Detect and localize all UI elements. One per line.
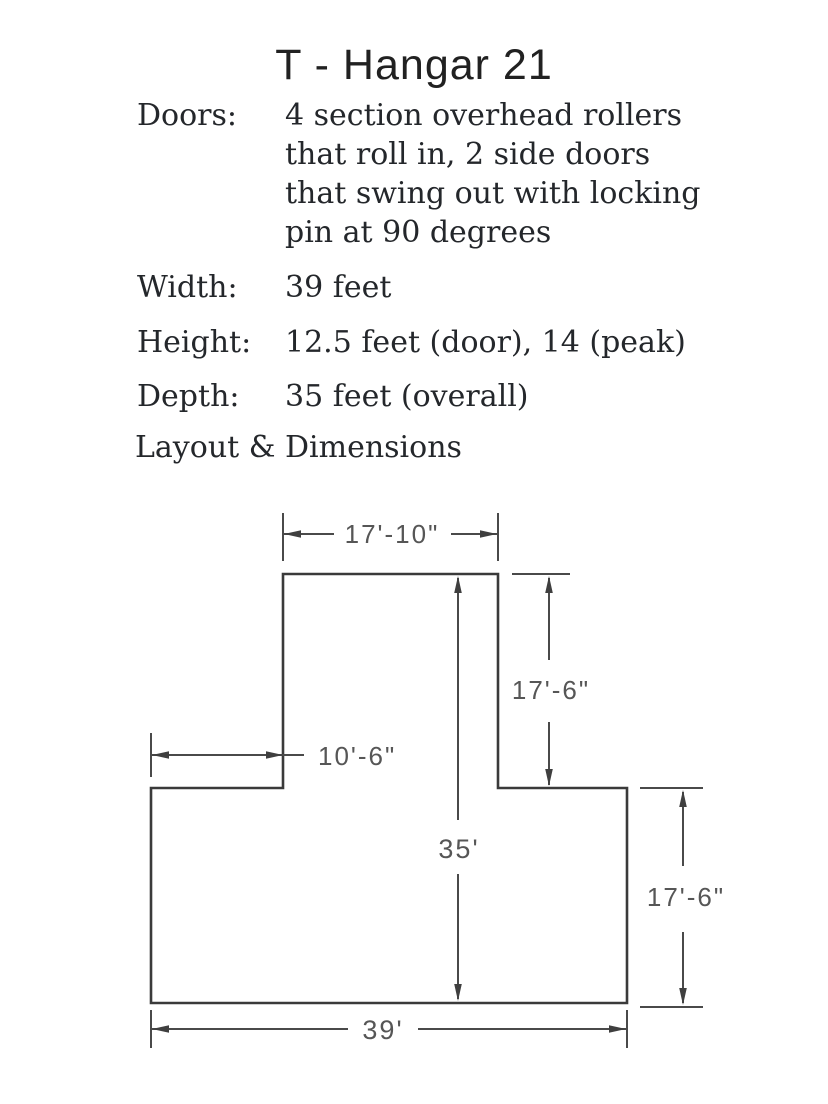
dimension-left-wing-width: 10'-6" [151,733,396,777]
dimension-lower-right-depth: 17'-6" [640,788,725,1007]
arrowhead-left [284,530,301,538]
arrowhead-right [609,1025,626,1033]
arrowhead-left [152,1025,169,1033]
page: T - Hangar 21 Doors: 4 section overhead … [0,0,828,1104]
dimension-label: 17'-10" [345,519,440,549]
dimension-label: 39' [362,1015,403,1045]
dimension-label: 17'-6" [647,882,725,912]
floor-plan-diagram: 17'-10" 17'-6" 10'-6" 35' [0,0,828,1104]
dimension-label: 35' [438,834,479,864]
arrowhead-left [152,751,169,759]
arrowhead-right [266,751,283,759]
dimension-top-width: 17'-10" [283,513,498,561]
dimension-label: 10'-6" [318,741,396,771]
arrowhead-up [679,790,687,807]
dimension-overall-depth: 35' [438,576,479,1001]
arrowhead-right [480,530,497,538]
dimension-overall-width: 39' [151,1010,627,1048]
dimension-upper-right-depth: 17'-6" [512,574,590,786]
building-outline [151,574,627,1003]
arrowhead-down [679,988,687,1005]
arrowhead-down [545,769,553,786]
arrowhead-down [454,984,462,1001]
arrowhead-up [545,576,553,593]
dimension-label: 17'-6" [512,675,590,705]
arrowhead-up [454,576,462,593]
